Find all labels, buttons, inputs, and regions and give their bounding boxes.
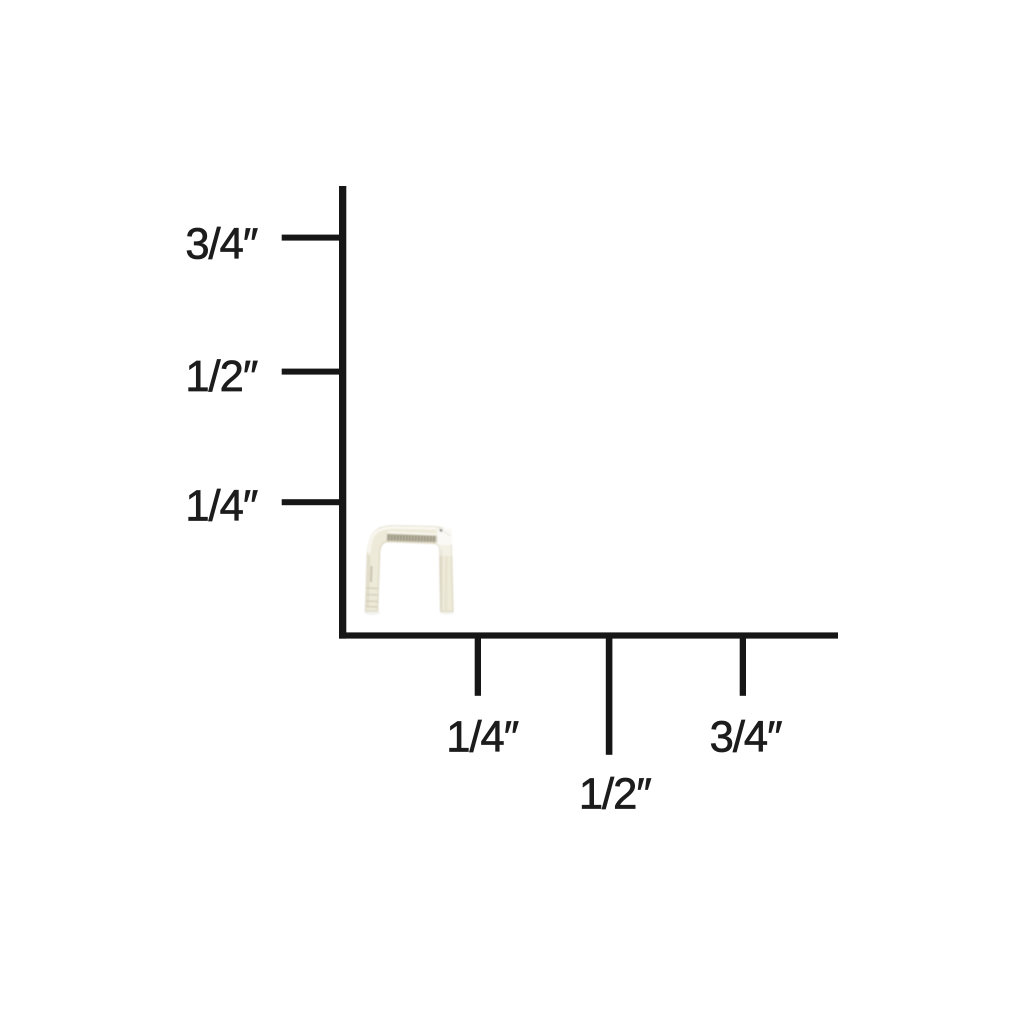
svg-text:1/2″: 1/2″ [579, 770, 651, 818]
svg-text:1/4″: 1/4″ [446, 713, 518, 761]
svg-text:3/4″: 3/4″ [185, 221, 257, 269]
svg-text:1/2″: 1/2″ [185, 353, 257, 401]
svg-text:1/4″: 1/4″ [185, 483, 257, 531]
svg-text:3/4″: 3/4″ [710, 713, 782, 761]
